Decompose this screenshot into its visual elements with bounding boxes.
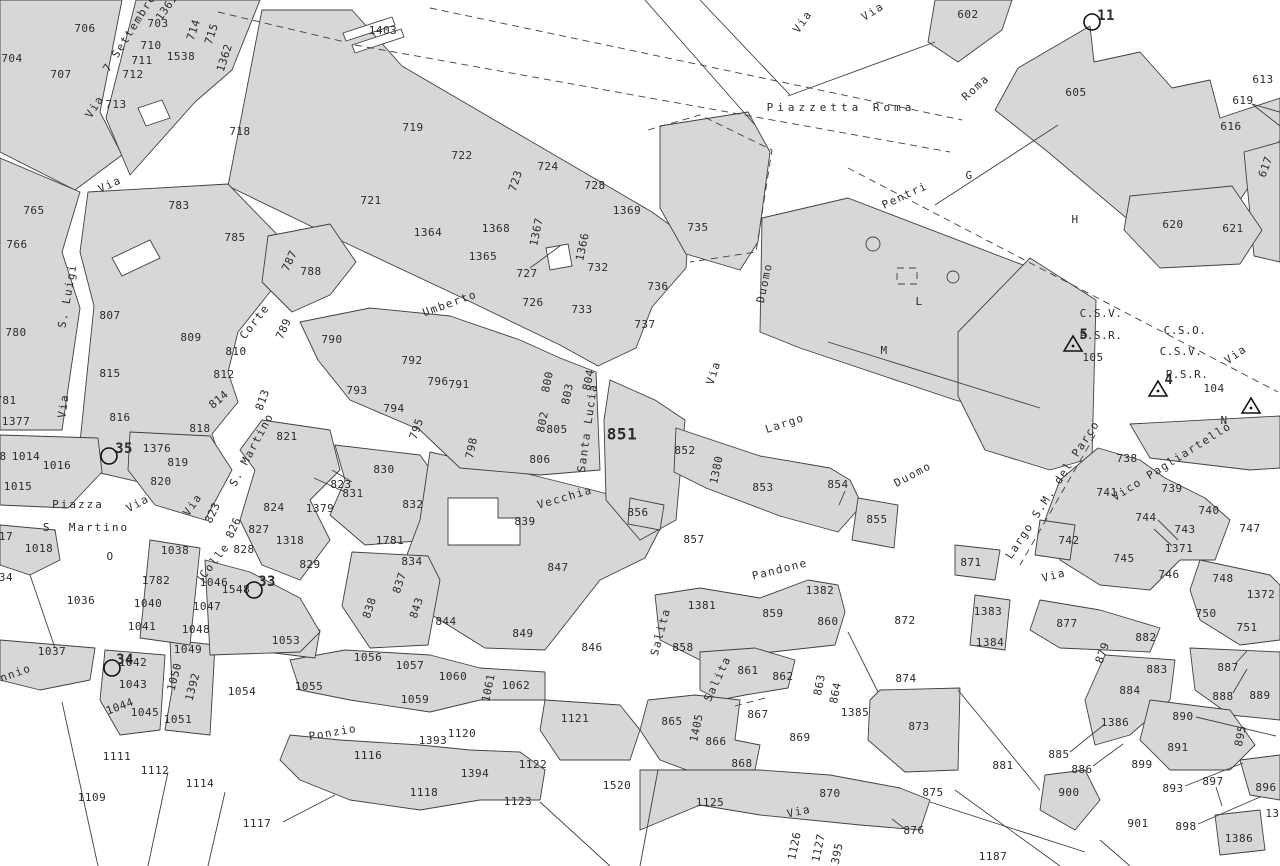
parcel-label: 1384 [976, 636, 1005, 649]
parcel-label: 1060 [439, 670, 468, 683]
parcel-label: 853 [752, 481, 773, 494]
boundary-line [148, 772, 168, 866]
parcel-label: 877 [1056, 617, 1077, 630]
building-block [1030, 600, 1160, 652]
parcel-label: 1120 [448, 727, 477, 740]
parcel-label: 900 [1058, 786, 1079, 799]
parcel-label: 1059 [401, 693, 430, 706]
parcel-label: 712 [122, 68, 143, 81]
parcel-label: 875 [922, 786, 943, 799]
parcel-label: 791 [448, 378, 469, 391]
parcel-label: 893 [1162, 782, 1183, 795]
parcel-label: 789 [273, 316, 294, 341]
parcel-label: 869 [789, 731, 810, 744]
parcel-label: 818 [189, 422, 210, 435]
parcel-label: 728 [584, 179, 605, 192]
parcel-label: 890 [1172, 710, 1193, 723]
parcel-label: 872 [894, 614, 915, 627]
parcel-label: 1118 [410, 786, 439, 799]
parcel-label: 862 [772, 670, 793, 683]
parcel-label: 785 [224, 231, 245, 244]
parcel-label: 829 [299, 558, 320, 571]
parcel-label: 873 [908, 720, 929, 733]
parcel-label: 1109 [78, 791, 107, 804]
area-label: G [965, 169, 972, 182]
parcel-label: 839 [514, 515, 535, 528]
benchmark-dot [1157, 390, 1160, 393]
parcel-label: 1114 [186, 777, 215, 790]
parcel-label: 821 [276, 430, 297, 443]
parcel-label: 602 [957, 8, 978, 21]
parcel-label: 736 [647, 280, 668, 293]
cadastral-map: 7067031361714715710153871113627127047077… [0, 0, 1280, 866]
place-label: S. Martino [43, 521, 129, 534]
benchmark-number: 5 [1080, 327, 1089, 343]
parcel-label: 852 [674, 444, 695, 457]
parcel-label: 861 [737, 664, 758, 677]
parcel-label: 621 [1222, 222, 1243, 235]
parcel-label: 816 [109, 411, 130, 424]
parcel-label: 765 [23, 204, 44, 217]
parcel-label: 851 [607, 425, 637, 444]
parcel-label: 874 [895, 672, 916, 685]
parcel-label: 733 [571, 303, 592, 316]
parcel-label: 780 [5, 326, 26, 339]
street-label: Roma [959, 72, 992, 103]
parcel-label: 724 [537, 160, 558, 173]
street-label: Duomo [892, 459, 934, 490]
parcel-label: 899 [1131, 758, 1152, 771]
area-label: O [106, 550, 113, 563]
parcel-label: 743 [1174, 523, 1195, 536]
parcel-label: 864 [827, 681, 844, 705]
boundary-line [208, 792, 225, 866]
parcel-label: 742 [1058, 534, 1079, 547]
building-block [228, 10, 688, 366]
place-label: Piazza [52, 498, 104, 511]
parcel-label: 859 [762, 607, 783, 620]
parcel-label: 1365 [469, 250, 498, 263]
parcel-label: 1393 [419, 734, 448, 747]
parcel-label: 1018 [25, 542, 54, 555]
parcel-label: 1379 [306, 502, 335, 515]
parcel-label: 1116 [354, 749, 383, 762]
parcel-label: 1043 [119, 678, 148, 691]
parcel-label: 805 [546, 423, 567, 436]
parcel-label: 1394 [461, 767, 490, 780]
building-block [640, 770, 930, 830]
area-label: M [880, 344, 887, 357]
building-block [540, 700, 640, 760]
parcel-label: 1386 [1225, 832, 1254, 845]
parcel-label: 1051 [164, 713, 193, 726]
cadastral-map-canvas: 7067031361714715710153871113627127047077… [0, 0, 1280, 866]
boundary-line [30, 575, 55, 648]
parcel-label: 1123 [504, 795, 533, 808]
parcel-label: 830 [373, 463, 394, 476]
parcel-label: 1045 [131, 706, 160, 719]
street-label: Via [1040, 566, 1067, 585]
parcel-label: 1376 [143, 442, 172, 455]
parcel-label: 796 [427, 375, 448, 388]
parcel-label: 1057 [396, 659, 425, 672]
street-label: Via [704, 359, 724, 386]
parcel-label: 719 [402, 121, 423, 134]
parcel-label: 846 [581, 641, 602, 654]
parcel-label: 898 [1175, 820, 1196, 833]
benchmark-dot [1250, 407, 1253, 410]
parcel-label: 857 [683, 533, 704, 546]
parcel-label: 876 [903, 824, 924, 837]
parcel-label: 744 [1135, 511, 1156, 524]
building-block [0, 0, 122, 190]
place-label: Piazzetta Roma [767, 101, 916, 114]
parcel-label: 1520 [603, 779, 632, 792]
parcel-label: 1126 [785, 831, 804, 862]
parcel-label: 710 [140, 39, 161, 52]
parcel-label: 620 [1162, 218, 1183, 231]
parcel-label: 847 [547, 561, 568, 574]
parcel-label: 897 [1202, 775, 1223, 788]
parcel-label: 711 [131, 54, 152, 67]
parcel-label: 1372 [1247, 588, 1276, 601]
parcel-label: 751 [1236, 621, 1257, 634]
parcel-label: 1049 [174, 643, 203, 656]
parcel-label: 1047 [193, 600, 222, 613]
boundary-line [1100, 840, 1130, 866]
parcel-label: 726 [522, 296, 543, 309]
street-label: Umberto [421, 288, 479, 320]
parcel-label: 832 [402, 498, 423, 511]
parcel-label: 882 [1135, 631, 1156, 644]
parcel-label: 1782 [142, 574, 171, 587]
parcel-label: 1117 [243, 817, 272, 830]
parcel-label: 727 [516, 267, 537, 280]
boundary-line [62, 702, 98, 866]
parcel-label: 766 [6, 238, 27, 251]
parcel-label: 1318 [276, 534, 305, 547]
parcel-label: 1383 [974, 605, 1003, 618]
parcel-label: 1038 [161, 544, 190, 557]
parcel-label: 891 [1167, 741, 1188, 754]
parcel-label: 871 [960, 556, 981, 569]
parcel-label: 883 [1146, 663, 1167, 676]
parcel-label: 868 [731, 757, 752, 770]
parcel-label: 1122 [519, 758, 548, 771]
parcel-label: 748 [1212, 572, 1233, 585]
building-block [1190, 560, 1280, 645]
parcel-label: 739 [1161, 482, 1182, 495]
area-label: 105 [1082, 351, 1103, 364]
parcel-label: 1053 [272, 634, 301, 647]
boundary-line [540, 802, 610, 866]
boundary-line [848, 632, 878, 692]
parcel-label: 793 [346, 384, 367, 397]
parcel-label: 896 [1255, 781, 1276, 794]
parcel-label: 1037 [38, 645, 67, 658]
survey-point-number: 33 [258, 574, 276, 590]
parcel-label: 1040 [134, 597, 163, 610]
parcel-label: 824 [263, 501, 284, 514]
parcel-label: 1381 [688, 599, 717, 612]
parcel-label: 812 [213, 368, 234, 381]
parcel-label: 901 [1127, 817, 1148, 830]
parcel-label: 713 [105, 98, 126, 111]
parcel-label: 788 [300, 265, 321, 278]
area-label: L [915, 295, 922, 308]
parcel-label: 834 [401, 555, 422, 568]
parcel-label: 858 [672, 641, 693, 654]
street-label: Via [1222, 342, 1249, 367]
parcel-label: 718 [229, 125, 250, 138]
parcel-label: 1125 [696, 796, 725, 809]
parcel-label: 1386 [1101, 716, 1130, 729]
parcel-label: 1062 [502, 679, 531, 692]
parcel-label: 809 [180, 331, 201, 344]
parcel-label: 745 [1113, 552, 1134, 565]
parcel-label: 856 [627, 506, 648, 519]
parcel-label: 1015 [4, 480, 33, 493]
benchmark-dot [1072, 345, 1075, 348]
parcel-label: 1014 [12, 450, 41, 463]
street-label: Via [859, 0, 887, 24]
boundary-line [1093, 744, 1123, 766]
parcel-label: 1364 [414, 226, 443, 239]
parcel-label: 1056 [354, 651, 383, 664]
parcel-label: 854 [827, 478, 848, 491]
courtyard [546, 244, 572, 270]
parcel-label: 605 [1065, 86, 1086, 99]
parcel-label: 1036 [67, 594, 96, 607]
parcel-label: 889 [1249, 689, 1270, 702]
boundary-line [935, 125, 1058, 205]
parcel-label: 849 [512, 627, 533, 640]
parcel-label: 884 [1119, 684, 1140, 697]
parcel-label: 1368 [482, 222, 511, 235]
area-label: H [1071, 213, 1078, 226]
parcel-label: 746 [1158, 568, 1179, 581]
parcel-label: 819 [167, 456, 188, 469]
boundary-line [958, 690, 1040, 790]
parcel-label: 783 [168, 199, 189, 212]
parcel-label: 706 [74, 22, 95, 35]
parcel-label: 1055 [295, 680, 324, 693]
survey-point-number: 11 [1097, 8, 1115, 24]
parcel-label: 813 [253, 388, 273, 413]
area-label: C.S.O. [1164, 324, 1207, 337]
area-label: N [1220, 414, 1227, 427]
parcel-label: 721 [360, 194, 381, 207]
parcel-label: 844 [435, 615, 456, 628]
boundary-line [1216, 787, 1222, 806]
parcel-label: 806 [529, 453, 550, 466]
parcel-label: 747 [1239, 522, 1260, 535]
parcel-label: 881 [992, 759, 1013, 772]
parcel-label: 863 [811, 673, 828, 697]
parcel-label: 613 [1252, 73, 1273, 86]
parcel-label: 1369 [613, 204, 642, 217]
parcel-label: 828 [233, 543, 254, 556]
parcel-label: 738 [1116, 452, 1137, 465]
parcel-label: 1403 [369, 24, 398, 37]
survey-point-number: 35 [115, 441, 133, 457]
parcel-label: 8 [0, 450, 7, 463]
parcel-label: 722 [451, 149, 472, 162]
survey-point-number: 34 [116, 652, 134, 668]
parcel-label: 1127 [809, 833, 828, 864]
parcel-label: 1371 [1165, 542, 1194, 555]
parcel-label: 1041 [128, 620, 157, 633]
parcel-label: 827 [248, 523, 269, 536]
street-label: Pentri [880, 179, 930, 211]
parcel-label: 1382 [806, 584, 835, 597]
parcel-label: 619 [1232, 94, 1253, 107]
parcel-label: 870 [819, 787, 840, 800]
parcel-label: 138 [1265, 807, 1280, 820]
parcel-label: 732 [587, 261, 608, 274]
parcel-label: 1112 [141, 764, 170, 777]
parcel-label: 867 [747, 708, 768, 721]
street-label: Via [790, 8, 815, 35]
benchmark-number: 4 [1165, 372, 1174, 388]
parcel-label: 616 [1220, 120, 1241, 133]
parcel-label: 790 [321, 333, 342, 346]
parcel-label: 1395 [827, 842, 846, 866]
parcel-label: 885 [1048, 748, 1069, 761]
parcel-label: 855 [866, 513, 887, 526]
parcel-label: 737 [634, 318, 655, 331]
street-label: Largo [764, 411, 807, 436]
parcel-label: 1111 [103, 750, 132, 763]
parcel-label: 807 [99, 309, 120, 322]
parcel-label: 704 [1, 52, 22, 65]
parcel-label: 820 [150, 475, 171, 488]
parcel-label: 865 [661, 715, 682, 728]
parcel-label: 792 [401, 354, 422, 367]
parcel-label: 750 [1195, 607, 1216, 620]
parcel-label: 1054 [228, 685, 257, 698]
parcel-label: 34 [0, 571, 13, 584]
parcel-label: 781 [0, 394, 17, 407]
street-label: Pandone [751, 556, 809, 582]
parcel-label: 17 [0, 530, 13, 543]
area-label: C.S.V. [1080, 307, 1123, 320]
boundary-line [645, 0, 755, 125]
area-label: C.S.V. [1160, 345, 1203, 358]
parcel-label: 1781 [376, 534, 405, 547]
parcel-label: 1538 [167, 50, 196, 63]
parcel-label: 740 [1198, 504, 1219, 517]
parcel-label: 860 [817, 615, 838, 628]
parcel-label: 1048 [182, 623, 211, 636]
parcel-label: 888 [1212, 690, 1233, 703]
parcel-label: 1016 [43, 459, 72, 472]
boundary-line [283, 795, 335, 822]
parcel-label: 866 [705, 735, 726, 748]
parcel-label: 735 [687, 221, 708, 234]
parcel-label: 1187 [979, 850, 1008, 863]
parcel-label: 1377 [2, 415, 31, 428]
parcel-label: 1385 [841, 706, 870, 719]
parcel-label: 831 [342, 487, 363, 500]
benchmark-triangle [1242, 398, 1260, 413]
street-label: Via [55, 393, 71, 419]
building-block [1040, 770, 1100, 830]
parcel-label: 794 [383, 402, 404, 415]
area-label: 104 [1203, 382, 1224, 395]
parcel-label: 886 [1071, 763, 1092, 776]
parcel-label: 1121 [561, 712, 590, 725]
parcel-label: 810 [225, 345, 246, 358]
parcel-label: 707 [50, 68, 71, 81]
parcel-label: 887 [1217, 661, 1238, 674]
parcel-label: 815 [99, 367, 120, 380]
